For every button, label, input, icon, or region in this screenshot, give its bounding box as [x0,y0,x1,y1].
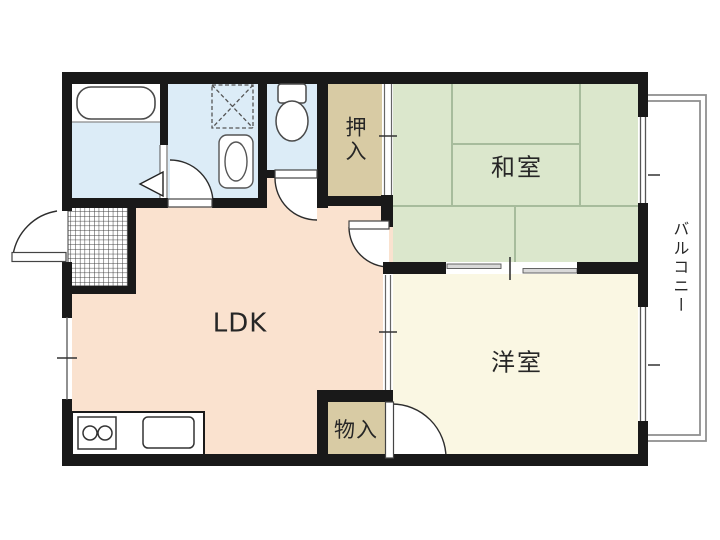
kitchen-sink-icon [143,417,194,448]
youshitsu-door-leaf [386,402,394,458]
washitsu-label: 和室 [491,155,543,180]
oshiire-label: 押入 [344,116,366,164]
monoire-label: 物入 [334,419,378,441]
youshitsu-window [638,307,660,421]
ldk-label: LDK [213,310,268,337]
youshitsu-label: 洋室 [491,350,543,375]
washroom-door-leaf [168,199,212,207]
toilet-icon [276,84,308,141]
balcony-label: バルコニー [671,221,688,316]
kitchen-counter [72,412,204,455]
toilet-door-leaf [275,170,317,178]
floor-plan-graphics [0,0,720,540]
washitsu-window [638,117,660,203]
stove-icon [78,417,116,449]
washitsu-door-leaf [349,221,389,229]
floor-plan: LDK 和室 洋室 押入 物入 バルコニー [0,0,720,540]
entrance-tile [68,207,128,286]
bathtub-icon [77,87,155,119]
entrance-door-leaf [12,253,66,262]
washbasin-icon [219,135,253,188]
